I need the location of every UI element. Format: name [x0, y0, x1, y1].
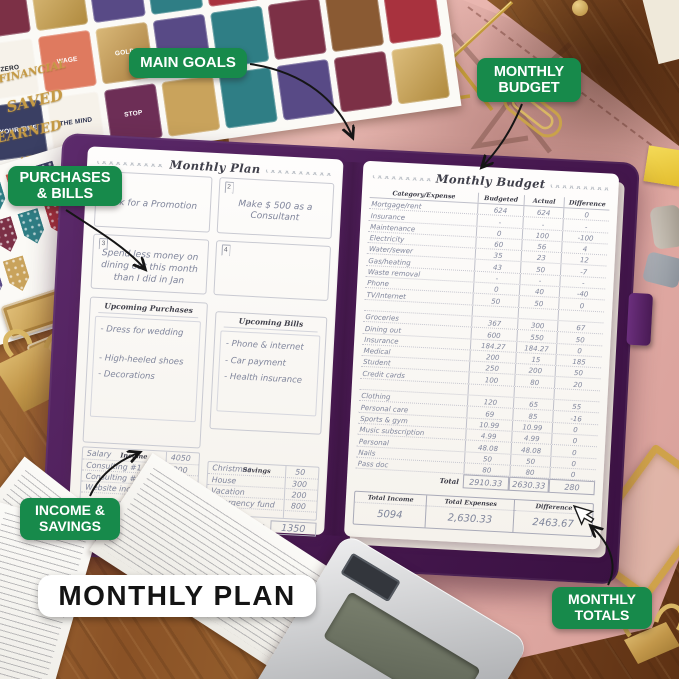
pennant-sticker — [0, 264, 6, 303]
product-photo-scene: ZEROWAGEGOLDYOUR TIMETHE MINDSTOP FINANC… — [0, 0, 679, 679]
sticker-tile — [29, 0, 88, 31]
summary-expenses-value: 2,630.33 — [426, 506, 514, 532]
col-actual: Actual — [523, 195, 564, 207]
savings-row-value: 200 — [285, 490, 313, 500]
callout-text: MONTHLY — [477, 64, 581, 80]
budget-actual — [513, 387, 554, 399]
budget-actual: 56 — [521, 240, 562, 252]
savings-row-value: 800 — [284, 501, 312, 511]
purchases-bills-callout: PURCHASES & BILLS — [8, 166, 122, 206]
callout-text: MAIN GOALS — [129, 55, 247, 72]
monthly-budget-callout: MONTHLY BUDGET — [477, 58, 581, 102]
goals-grid: 1 Ask for a Promotion 2 Make $ 500 as a … — [91, 171, 335, 301]
budget-actual: 50 — [520, 262, 561, 274]
washi-tape-roll — [649, 204, 679, 250]
budget-actual: 23 — [520, 251, 561, 263]
upcoming-purchases-title: Upcoming Purchases — [98, 301, 198, 318]
callout-text: MONTHLY — [552, 592, 652, 608]
callout-text: & BILLS — [8, 186, 122, 202]
budget-total-actual: 2630.33 — [508, 477, 549, 493]
pennant-sticker — [3, 255, 33, 294]
summary-total-income: Total Income 5094 — [354, 492, 427, 528]
squiggle-rule — [265, 167, 333, 177]
sticker-tile — [0, 0, 31, 40]
callout-text: INCOME & — [20, 503, 120, 519]
goal-box: 2 Make $ 500 as a Consultant — [216, 177, 334, 238]
gold-pin — [572, 0, 588, 16]
monthly-plan-banner: MONTHLY PLAN — [38, 575, 316, 617]
budget-actual: 65 — [512, 398, 553, 410]
callout-text: SAVINGS — [20, 519, 120, 535]
budget-actual: 48.08 — [510, 443, 551, 455]
income-column-label: Income — [120, 451, 147, 460]
income-row-value: 4050 — [167, 453, 195, 463]
savings-row-name: House — [211, 475, 236, 485]
upcoming-bills-title: Upcoming Bills — [224, 316, 318, 333]
summary-difference-value: 2463.67 — [514, 511, 593, 536]
budget-summary-table: Total Income 5094 Total Expenses 2,630.3… — [353, 491, 594, 538]
budget-actual: 80 — [514, 375, 555, 387]
income-savings-callout: INCOME & SAVINGS — [20, 498, 120, 540]
savings-row-value: 300 — [285, 479, 313, 489]
pennant-sticker — [0, 216, 21, 255]
sticker-tile — [334, 51, 393, 113]
summary-total-expenses: Total Expenses 2,630.33 — [425, 495, 515, 532]
upcoming-bills-list: - Phone & internet- Car payment- Health … — [216, 330, 320, 416]
summary-difference: Difference 2463.67 — [513, 500, 593, 536]
sticker-tile — [382, 0, 441, 44]
monthly-budget-page: Monthly Budget Category/Expense Budgeted… — [344, 161, 619, 550]
purchase-item: - Dress for wedding — [100, 321, 195, 342]
summary-income-value: 5094 — [354, 503, 426, 528]
yellow-sticky-note — [643, 145, 679, 186]
budget-actual: 550 — [516, 330, 557, 342]
budget-total-difference: 280 — [549, 479, 595, 495]
budget-actual: 200 — [514, 364, 555, 376]
budget-actual: 100 — [521, 229, 562, 241]
sticker-tile — [144, 0, 203, 15]
pen-loop — [626, 293, 653, 346]
budget-actual: 40 — [518, 285, 559, 297]
budget-actual: 50 — [518, 296, 559, 308]
budget-actual: 184.27 — [515, 341, 556, 353]
sticker-tile: WAGE — [38, 30, 97, 92]
sticker-tile — [276, 59, 335, 121]
sticker-tile — [161, 75, 220, 137]
sticker-tile — [268, 0, 327, 60]
goal-number-tag-icon: 2 — [224, 181, 234, 193]
upcoming-purchases-list: - Dress for wedding- High-heeled shoes- … — [90, 316, 201, 422]
sticker-tile — [325, 0, 384, 52]
goal-number-tag-icon: 4 — [221, 244, 231, 256]
budget-actual: 50 — [510, 454, 551, 466]
budget-rows: Mortgage/rent 624 624 0 Insurance - - - … — [355, 198, 609, 481]
squiggle-rule — [550, 181, 608, 190]
monthly-totals-callout: MONTHLY TOTALS — [552, 587, 652, 629]
savings-row-value: 50 — [286, 467, 314, 477]
budget-actual: 80 — [509, 466, 550, 478]
sticker-tile — [87, 0, 146, 23]
callout-text: PURCHASES — [8, 170, 122, 186]
budget-actual: 624 — [523, 206, 564, 218]
sticker-tile — [391, 42, 450, 104]
callout-text: TOTALS — [552, 608, 652, 624]
budget-actual: 10.99 — [511, 420, 552, 432]
budget-total-label: Total — [355, 471, 463, 486]
squiggle-rule — [373, 172, 431, 181]
income-row-name: Salary — [87, 449, 112, 459]
main-goals-callout: MAIN GOALS — [129, 48, 247, 78]
goal-text: Make $ 500 as a Consultant — [224, 198, 327, 227]
upcoming-purchases-box: Upcoming Purchases - Dress for wedding- … — [82, 297, 207, 449]
budget-actual: 4.99 — [511, 432, 552, 444]
plan-page-title: Monthly Plan — [169, 158, 261, 177]
bill-item: - Health insurance — [224, 369, 313, 390]
callout-text: BUDGET — [477, 80, 581, 96]
goal-box: 4 — [213, 240, 331, 301]
upcoming-bills-box: Upcoming Bills - Phone & internet- Car p… — [209, 311, 327, 435]
budget-actual: 15 — [515, 353, 556, 365]
savings-column-label: Savings — [242, 466, 270, 475]
goal-text: Spend less money on dining out this mont… — [98, 248, 201, 288]
budget-page-title: Monthly Budget — [435, 171, 545, 191]
budget-total-budgeted: 2910.33 — [463, 474, 509, 490]
goal-box: 3 Spend less money on dining out this mo… — [91, 233, 209, 294]
sticker-tile — [202, 0, 261, 7]
pennant-sticker — [17, 208, 47, 247]
budget-actual: - — [519, 274, 560, 286]
budget-actual: 85 — [512, 409, 553, 421]
budget-actual: 300 — [517, 319, 558, 331]
budget-table: Category/Expense Budgeted Actual Differe… — [355, 187, 610, 495]
budget-actual: - — [522, 217, 563, 229]
budget-actual — [517, 308, 558, 320]
